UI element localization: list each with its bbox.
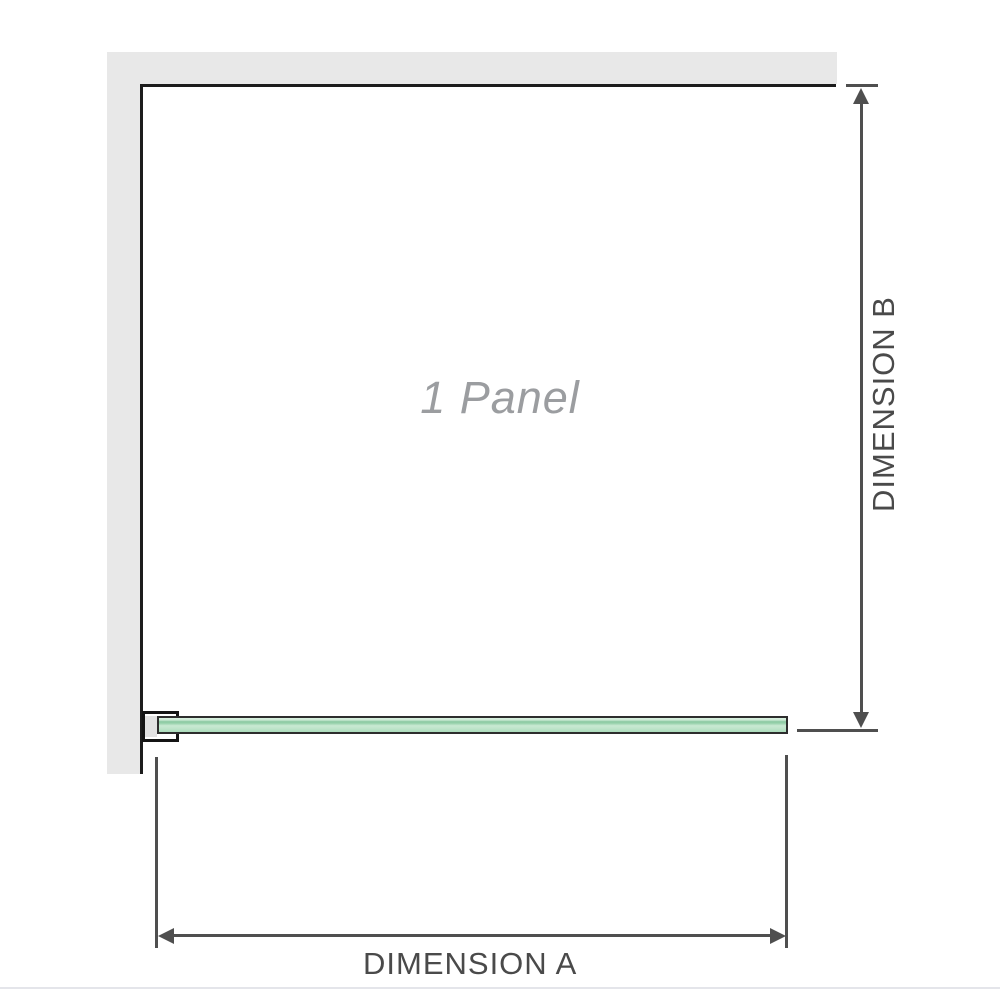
- dimension-a-left-extension: [155, 757, 158, 948]
- enclosure-left-border: [140, 84, 143, 774]
- dimension-a-right-extension: [785, 755, 788, 948]
- wall-bracket-gap: [145, 716, 157, 737]
- diagram-canvas: 1 Panel DIMENSION B DIMENSION A: [0, 0, 1000, 1000]
- dimension-b-bottom-tick: [797, 729, 878, 732]
- arrow-right-icon: [770, 928, 786, 944]
- arrow-left-icon: [158, 928, 174, 944]
- bottom-divider: [0, 987, 1000, 989]
- dimension-b-top-tick: [846, 84, 878, 87]
- wall-top-bar: [107, 52, 837, 84]
- wall-left-bar: [107, 52, 140, 774]
- dimension-a-label: DIMENSION A: [363, 946, 577, 982]
- dimension-b-label: DIMENSION B: [866, 296, 902, 512]
- dimension-b-line: [860, 96, 863, 718]
- arrow-up-icon: [853, 88, 869, 104]
- glass-panel: [157, 716, 788, 734]
- dimension-a-line: [166, 934, 778, 937]
- enclosure-top-border: [140, 84, 836, 87]
- arrow-down-icon: [853, 712, 869, 728]
- panel-count-label: 1 Panel: [290, 372, 710, 424]
